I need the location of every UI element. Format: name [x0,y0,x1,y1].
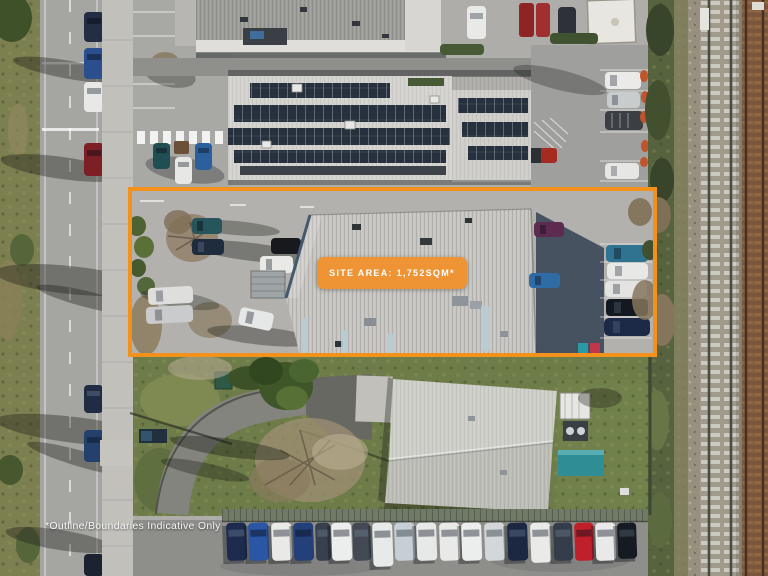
car [604,318,650,336]
car [84,385,103,413]
disclaimer-text: *Outline/Boundaries Indicative Only [45,520,221,532]
van [605,72,641,89]
car [146,305,194,324]
car [605,163,639,179]
car [327,522,352,564]
car [605,111,643,130]
car [412,522,437,564]
solar-building [228,70,531,185]
van [368,522,394,570]
south-east-yard [557,380,648,512]
car [192,218,222,234]
railway [674,0,768,576]
car [260,256,293,273]
trailer [174,141,189,154]
car [153,143,170,169]
car [148,286,194,305]
car [591,522,616,564]
car [84,48,104,79]
car [394,522,415,561]
south-warehouse [378,377,557,518]
car [484,522,505,561]
car [607,92,640,108]
car [536,3,550,37]
car [267,522,292,564]
car [84,554,104,576]
car [84,143,104,176]
canopy [251,271,285,298]
east-parking-north [511,45,649,190]
car [530,522,551,563]
car [222,522,247,564]
car [289,522,314,564]
car [503,522,528,564]
car [84,82,104,112]
car [534,222,564,237]
car [244,522,269,564]
car [195,143,212,170]
car [519,3,534,37]
car [84,12,104,42]
van [467,6,486,39]
car [549,522,573,564]
car [439,522,460,561]
car [192,239,224,255]
ute [531,148,557,163]
aerial-photo: SITE AREA: 1,752SQM* *Outline/Boundaries… [0,0,768,576]
car [606,245,648,262]
car [607,263,648,279]
car [613,522,637,562]
site-area-badge: SITE AREA: 1,752SQM* [317,257,467,289]
car [529,273,560,288]
car [457,522,482,564]
rail-track-1 [701,0,739,576]
car [175,157,192,184]
car [558,7,576,36]
car [271,238,301,254]
